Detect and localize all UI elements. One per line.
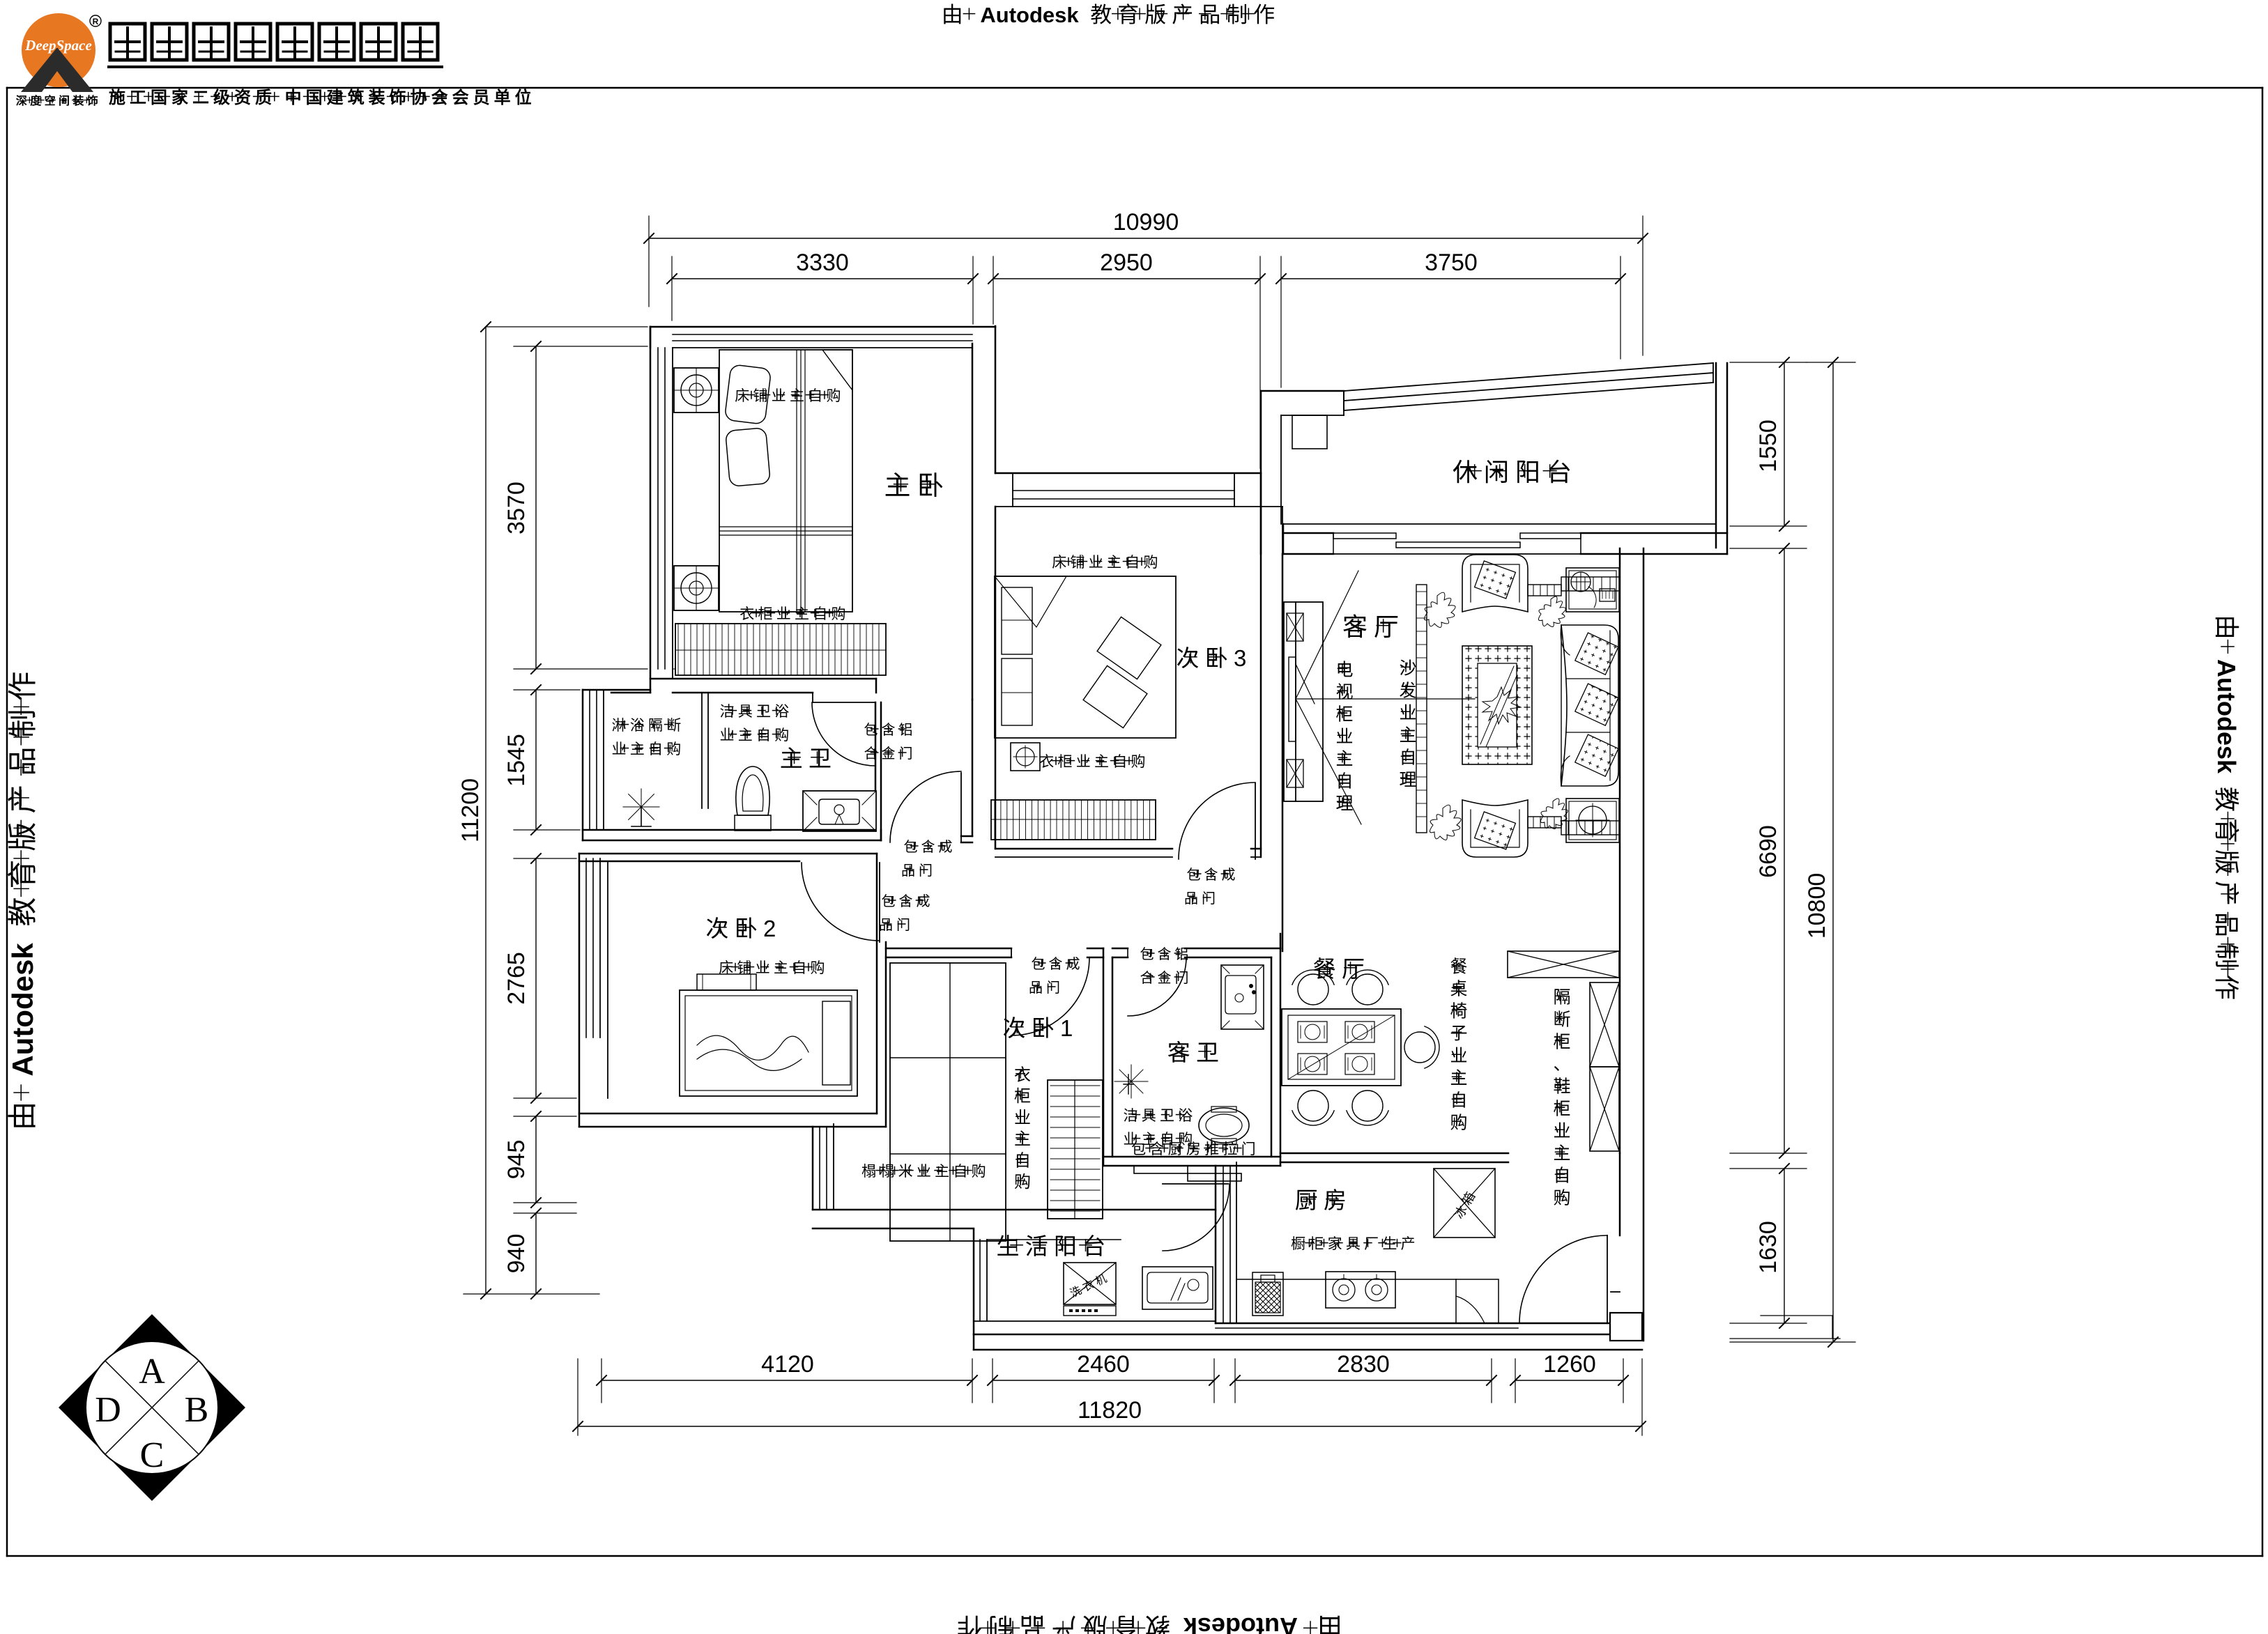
svg-text:鞋: 鞋	[1553, 1077, 1570, 1096]
svg-text:1630: 1630	[1755, 1221, 1782, 1274]
svg-text:合金门: 合金门	[1140, 970, 1193, 986]
svg-text:由 Autodesk 教育版产品制作: 由 Autodesk 教育版产品制作	[2212, 615, 2241, 1006]
svg-text:945: 945	[503, 1140, 530, 1180]
svg-text:10990: 10990	[1113, 209, 1179, 236]
svg-text:沙: 沙	[1399, 658, 1416, 678]
svg-text:主: 主	[1014, 1130, 1031, 1149]
svg-text:3570: 3570	[503, 481, 530, 534]
svg-text:、: 、	[1553, 1054, 1570, 1074]
svg-text:主: 主	[1399, 725, 1416, 745]
svg-text:购: 购	[1553, 1188, 1570, 1208]
svg-text:主卫: 主卫	[780, 746, 838, 771]
svg-text:业: 业	[1553, 1121, 1570, 1141]
svg-text:主卧: 主卧	[884, 472, 950, 501]
svg-text:衣: 衣	[1014, 1065, 1031, 1084]
svg-text:主: 主	[1553, 1143, 1570, 1163]
svg-text:品门: 品门	[879, 917, 914, 933]
svg-text:餐厅: 餐厅	[1313, 956, 1371, 982]
svg-text:洁具卫浴: 洁具卫浴	[1124, 1108, 1197, 1124]
svg-text:自: 自	[1399, 748, 1416, 767]
svg-text:客卫: 客卫	[1167, 1040, 1225, 1065]
svg-text:柜: 柜	[1014, 1087, 1031, 1106]
svg-text:1260: 1260	[1543, 1351, 1596, 1378]
svg-text:包含厨房推拉门: 包含厨房推拉门	[1131, 1141, 1259, 1157]
svg-text:购: 购	[1014, 1173, 1031, 1192]
svg-text:主: 主	[1335, 749, 1353, 769]
svg-text:A: A	[139, 1352, 165, 1392]
svg-text:4120: 4120	[761, 1351, 814, 1378]
svg-text:合金门: 合金门	[864, 746, 917, 762]
svg-text:自: 自	[1553, 1166, 1570, 1185]
svg-text:2460: 2460	[1077, 1351, 1130, 1378]
svg-text:10800: 10800	[1804, 873, 1830, 939]
svg-text:2830: 2830	[1337, 1351, 1390, 1378]
svg-text:业: 业	[1335, 727, 1353, 746]
svg-text:柜: 柜	[1335, 704, 1353, 724]
svg-text:940: 940	[503, 1234, 530, 1274]
svg-text:餐: 餐	[1450, 957, 1467, 976]
svg-text:1545: 1545	[503, 734, 530, 787]
svg-text:施工国家二级资质 中国建筑装饰协会会员单位: 施工国家二级资质 中国建筑装饰协会会员单位	[109, 88, 536, 107]
svg-text:包含铝: 包含铝	[864, 722, 917, 738]
svg-text:主: 主	[1450, 1068, 1467, 1088]
svg-text:淋浴隔断: 淋浴隔断	[612, 718, 685, 734]
svg-text:自: 自	[1450, 1090, 1467, 1110]
svg-text:品门: 品门	[1029, 980, 1064, 996]
svg-text:11200: 11200	[457, 778, 484, 842]
svg-text:由 Autodesk 教育版产品制作: 由 Autodesk 教育版产品制作	[6, 663, 39, 1131]
svg-text:橱柜家具厂生产: 橱柜家具厂生产	[1291, 1236, 1419, 1252]
svg-text:包含成: 包含成	[882, 893, 934, 909]
svg-text:断: 断	[1553, 1010, 1570, 1029]
svg-text:3750: 3750	[1425, 249, 1478, 276]
svg-text:6690: 6690	[1755, 825, 1782, 878]
svg-text:理: 理	[1335, 794, 1353, 813]
svg-text:包含成: 包含成	[1032, 956, 1084, 972]
svg-text:C: C	[140, 1435, 164, 1475]
svg-text:隔: 隔	[1553, 987, 1570, 1007]
svg-text:业主自购: 业主自购	[720, 727, 793, 743]
svg-text:深度空间装饰: 深度空间装饰	[16, 94, 101, 107]
svg-text:视: 视	[1335, 682, 1353, 702]
svg-text:发: 发	[1399, 681, 1416, 700]
svg-text:自: 自	[1335, 771, 1353, 791]
svg-text:包含成: 包含成	[904, 839, 956, 855]
svg-text:业: 业	[1399, 703, 1416, 723]
svg-text:业: 业	[1014, 1109, 1031, 1127]
svg-text:包含成: 包含成	[1187, 867, 1239, 883]
svg-text:洁具卫浴: 洁具卫浴	[720, 704, 793, 720]
svg-text:理: 理	[1399, 770, 1416, 789]
svg-text:业: 业	[1450, 1046, 1467, 1065]
svg-text:B: B	[185, 1390, 209, 1430]
svg-text:2950: 2950	[1100, 249, 1153, 276]
svg-text:2765: 2765	[503, 952, 530, 1005]
svg-text:厨房: 厨房	[1295, 1187, 1353, 1213]
svg-text:子: 子	[1450, 1024, 1467, 1043]
svg-text:自: 自	[1014, 1151, 1031, 1170]
svg-text:品门: 品门	[901, 863, 936, 879]
svg-text:桌: 桌	[1450, 979, 1467, 999]
svg-text:品门: 品门	[1184, 891, 1219, 907]
svg-text:电: 电	[1335, 660, 1353, 679]
svg-text:椅: 椅	[1450, 1001, 1467, 1021]
svg-text:客厅: 客厅	[1342, 612, 1405, 641]
svg-text:柜: 柜	[1553, 1032, 1570, 1051]
svg-text:榻榻米业主自购: 榻榻米业主自购	[861, 1164, 990, 1180]
svg-text:购: 购	[1450, 1113, 1467, 1132]
svg-text:包含铝: 包含铝	[1140, 946, 1193, 962]
svg-text:D: D	[95, 1390, 121, 1430]
svg-text:业主自购: 业主自购	[612, 741, 685, 757]
svg-text:休闲阳台: 休闲阳台	[1453, 458, 1578, 486]
svg-text:R: R	[93, 17, 99, 26]
svg-text:3330: 3330	[796, 249, 849, 276]
svg-text:11820: 11820	[1078, 1397, 1142, 1424]
svg-text:1550: 1550	[1755, 419, 1782, 472]
svg-text:由 Autodesk 教育版产品制作: 由 Autodesk 教育版产品制作	[951, 1612, 1342, 1634]
svg-text:由 Autodesk 教育版产品制作: 由 Autodesk 教育版产品制作	[942, 3, 1281, 27]
svg-text:柜: 柜	[1553, 1099, 1570, 1118]
svg-text:生活阳台: 生活阳台	[997, 1233, 1112, 1259]
